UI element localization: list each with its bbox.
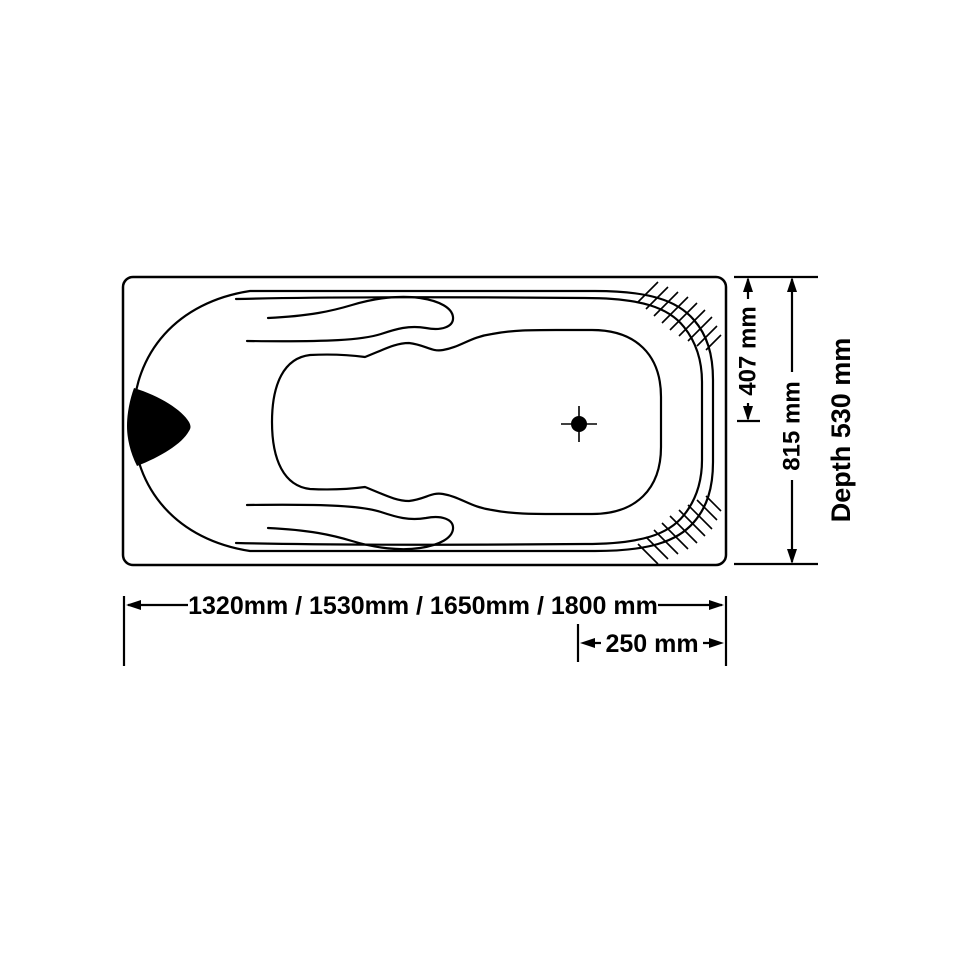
hatch-top-right [638, 282, 721, 350]
tub-rim-outer-outline [133, 291, 713, 551]
tub-basin-outline [272, 330, 661, 514]
dim-label-lengths: 1320mm / 1530mm / 1650mm / 1800 mm [188, 592, 658, 620]
dim-label-250: 250 mm [605, 630, 698, 658]
dim-label-407: 407 mm [735, 306, 762, 395]
dim-label-815: 815 mm [779, 381, 806, 470]
dimension-250: 250 mm [578, 624, 724, 662]
tub-deck-outline [123, 277, 726, 565]
diagram-svg: 407 mm 815 mm Depth 530 mm 1320mm / 1530… [0, 0, 960, 960]
bathtub-technical-drawing: 407 mm 815 mm Depth 530 mm 1320mm / 1530… [0, 0, 960, 960]
armrest-contour-bottom [247, 505, 453, 549]
dimension-lengths: 1320mm / 1530mm / 1650mm / 1800 mm [126, 592, 724, 620]
drain-marker-icon [561, 406, 597, 442]
tub-rim-inner-outline [236, 297, 702, 544]
headrest-pillow [127, 388, 191, 466]
hatch-bottom-right [638, 496, 721, 564]
dimension-815: 815 mm [779, 277, 806, 564]
armrest-contour-top [247, 297, 453, 341]
dim-label-depth: Depth 530 mm [826, 338, 856, 523]
dimension-407: 407 mm [735, 277, 762, 421]
